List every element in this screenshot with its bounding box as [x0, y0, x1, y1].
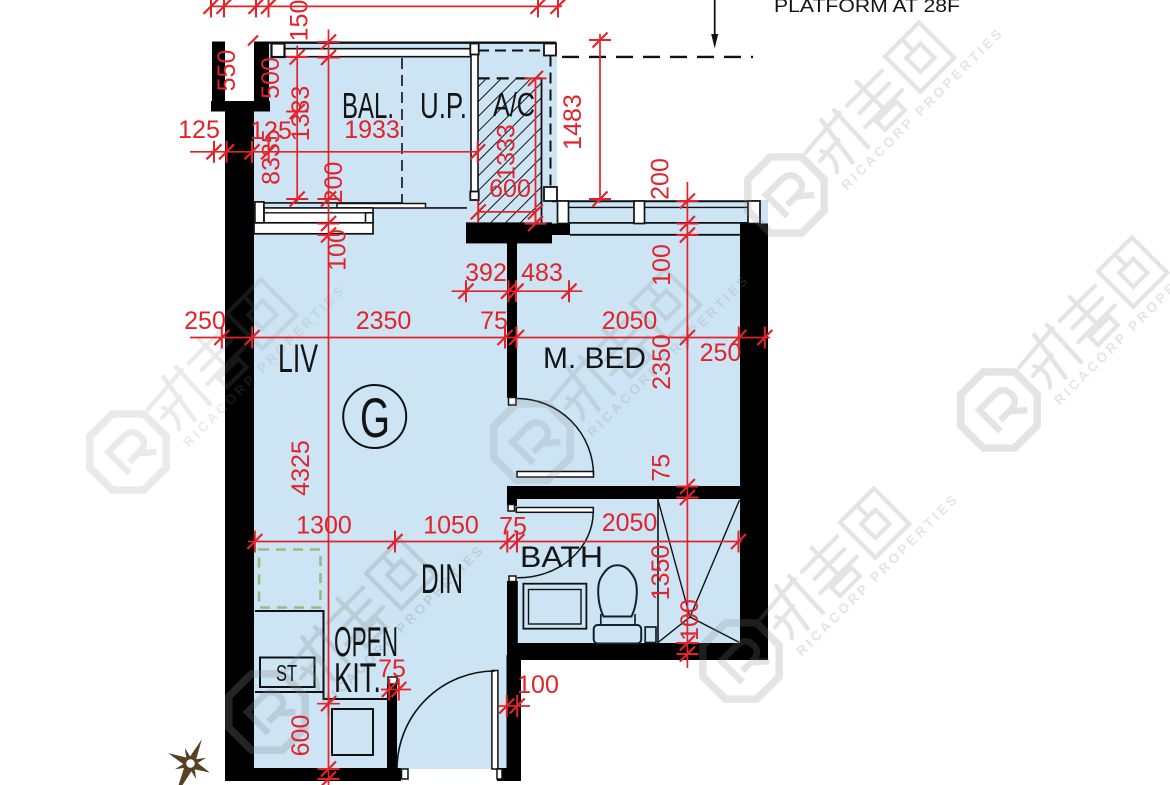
- svg-text:600: 600: [287, 715, 315, 757]
- svg-text:125: 125: [178, 116, 220, 144]
- svg-text:BATH: BATH: [520, 541, 603, 574]
- svg-text:75: 75: [480, 307, 508, 335]
- svg-text:M. BED: M. BED: [543, 342, 646, 375]
- svg-text:A/C: A/C: [493, 86, 535, 123]
- svg-text:250: 250: [184, 307, 226, 335]
- svg-text:1300: 1300: [296, 512, 352, 540]
- svg-text:75: 75: [499, 513, 527, 541]
- svg-text:LIV: LIV: [278, 337, 318, 381]
- svg-text:4325: 4325: [287, 440, 315, 496]
- svg-text:BAL.: BAL.: [342, 85, 394, 126]
- svg-text:DIN: DIN: [421, 555, 463, 602]
- svg-text:100: 100: [648, 244, 676, 286]
- svg-text:483: 483: [521, 259, 563, 287]
- svg-text:2050: 2050: [602, 307, 658, 335]
- svg-text:75: 75: [648, 454, 676, 482]
- svg-text:150: 150: [286, 0, 314, 41]
- svg-text:250: 250: [700, 339, 742, 367]
- svg-text:550: 550: [213, 50, 241, 92]
- svg-text:1050: 1050: [423, 512, 479, 540]
- svg-text:100: 100: [676, 599, 704, 641]
- svg-text:1333: 1333: [287, 86, 315, 142]
- svg-text:1350: 1350: [647, 545, 675, 601]
- svg-text:2350: 2350: [356, 307, 412, 335]
- svg-text:100: 100: [324, 229, 352, 271]
- svg-text:200: 200: [647, 158, 675, 200]
- svg-text:8335: 8335: [258, 129, 286, 185]
- svg-text:KIT.: KIT.: [334, 654, 381, 701]
- svg-text:G: G: [360, 386, 390, 449]
- svg-text:1483: 1483: [559, 94, 587, 150]
- svg-text:200: 200: [320, 162, 348, 204]
- svg-text:2350: 2350: [648, 334, 676, 390]
- svg-text:2050: 2050: [602, 509, 658, 537]
- svg-text:500: 500: [257, 57, 285, 99]
- svg-text:392: 392: [465, 259, 507, 287]
- svg-text:PLATFORM AT 28F: PLATFORM AT 28F: [774, 0, 960, 16]
- svg-text:ST: ST: [276, 660, 297, 686]
- svg-text:U.P.: U.P.: [420, 85, 467, 126]
- svg-text:100: 100: [517, 671, 559, 699]
- svg-text:1333: 1333: [493, 124, 521, 180]
